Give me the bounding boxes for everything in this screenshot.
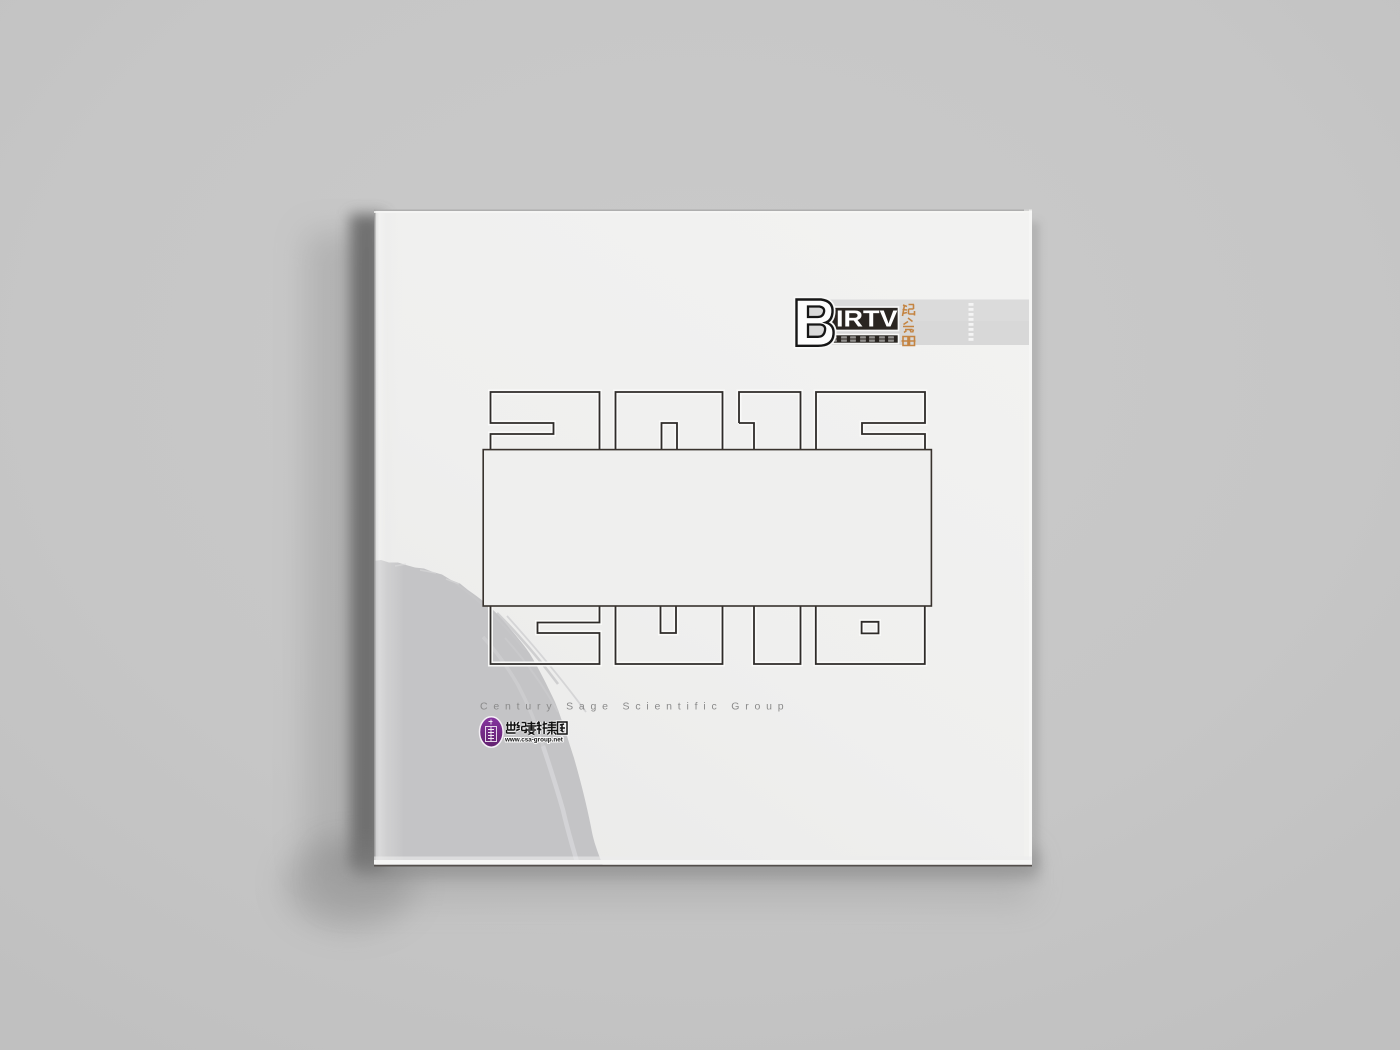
- svg-text:www.csa-group.net: www.csa-group.net: [504, 737, 564, 744]
- svg-text:IRTV: IRTV: [836, 306, 898, 332]
- svg-text:Century Sage Scientific Group: Century Sage Scientific Group: [480, 701, 789, 713]
